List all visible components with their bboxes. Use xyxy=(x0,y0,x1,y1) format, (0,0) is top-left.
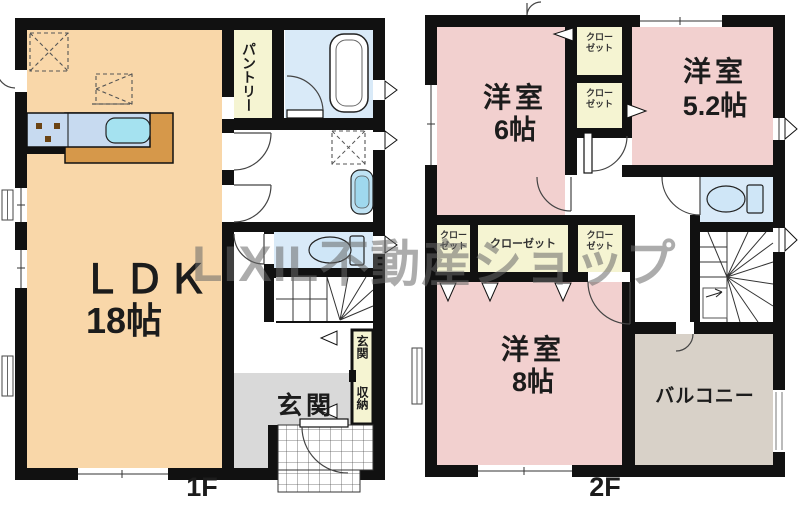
floorplan-canvas: ＬＤＫ 18帖 パントリー 玄関 玄関 収納 1F 洋室 6帖 洋室 5.2帖 … xyxy=(0,0,800,513)
washbasin-bowl xyxy=(355,176,369,208)
washer-space-cross xyxy=(332,131,365,164)
casement-flap-icon xyxy=(785,118,797,139)
washroom-door xyxy=(234,133,271,170)
room8-size-label: 8帖 xyxy=(478,369,588,396)
closet-top2-label-2: ゼット xyxy=(577,100,622,110)
genkan-storage-label-2: 収納 xyxy=(356,386,368,410)
door-opening xyxy=(222,133,234,170)
room52-size-label: 5.2帖 xyxy=(650,93,780,120)
kitchen-sink xyxy=(106,118,150,143)
room6-size-label: 6帖 xyxy=(460,117,570,144)
window xyxy=(373,80,385,100)
f1-exterior-fixtures xyxy=(2,190,13,396)
genkan-label: 玄関 xyxy=(256,394,356,419)
door-opening xyxy=(222,185,234,222)
f2-exterior-fixtures xyxy=(412,348,422,404)
closet-top1-label-1: クロー xyxy=(577,33,622,43)
toilet-fixture-2f xyxy=(707,185,763,213)
room8-label: 洋室 xyxy=(478,336,588,364)
room6-label: 洋室 xyxy=(460,84,570,112)
watermark-text: LIXIL不動産ショップ xyxy=(192,224,676,296)
casement-flap-icon xyxy=(785,228,797,251)
pantry-label: パントリー xyxy=(242,42,256,112)
toilet-tank xyxy=(747,185,763,213)
casement-flap-icon xyxy=(385,81,397,99)
balcony-label: バルコニー xyxy=(638,387,772,406)
balcony-rail-opening xyxy=(773,390,785,452)
stairs-2f xyxy=(700,232,773,322)
folding-door-icon xyxy=(321,331,337,345)
storage-notch xyxy=(349,370,356,382)
floor1-label: 1F xyxy=(178,474,226,501)
entrance-porch xyxy=(278,419,373,492)
washroom-fixtures xyxy=(332,131,373,214)
f2-casement-flaps xyxy=(785,118,797,251)
window xyxy=(373,132,385,150)
door-opening xyxy=(676,322,694,334)
hall-door xyxy=(234,185,271,222)
entry-side-door-opening xyxy=(15,70,27,92)
pantry-opening xyxy=(222,97,234,119)
entry-door-leaf xyxy=(300,419,348,427)
casement-flap-icon xyxy=(385,131,397,149)
genkan-storage-label-1: 玄関 xyxy=(356,335,368,359)
porch-tile-inner-grid xyxy=(278,425,373,470)
ldk-size-label: 18帖 xyxy=(54,303,194,339)
bedroom52-door-leaf xyxy=(584,133,592,173)
room52-label: 洋室 xyxy=(655,58,775,86)
vent-flap-arc xyxy=(527,2,541,15)
bathtub xyxy=(330,34,368,112)
floor2-label: 2F xyxy=(580,474,630,501)
bath-door-leaf xyxy=(287,110,323,118)
door-opening xyxy=(690,177,700,215)
toilet-bowl xyxy=(707,186,745,212)
closet-top1-label-2: ゼット xyxy=(577,44,622,54)
bedroom52-door-arc xyxy=(592,136,627,171)
closet-top2-label-1: クロー xyxy=(577,89,622,99)
entry-side-door-arc xyxy=(0,70,15,88)
